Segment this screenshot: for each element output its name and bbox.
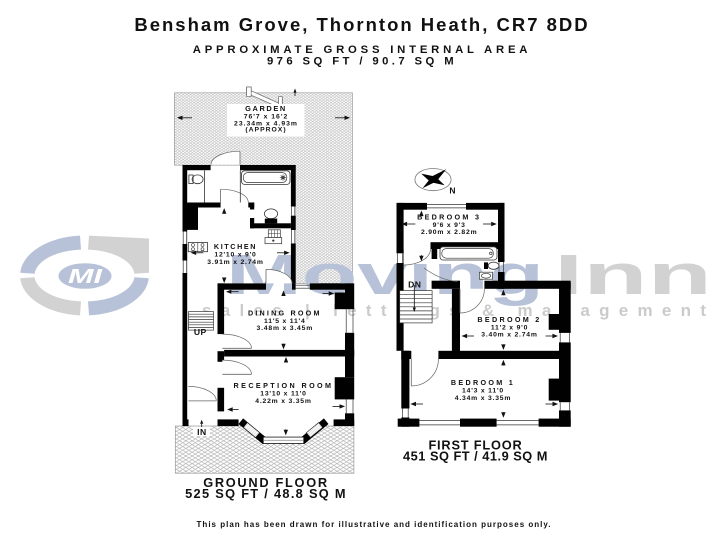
svg-text:RECEPTION ROOM: RECEPTION ROOM xyxy=(234,381,334,390)
svg-text:GARDEN: GARDEN xyxy=(245,104,287,113)
svg-text:9'6 x 9'3: 9'6 x 9'3 xyxy=(433,222,466,229)
svg-text:UP: UP xyxy=(194,327,207,337)
svg-text:Inn: Inn xyxy=(554,243,712,307)
svg-text:2.90m x 2.82m: 2.90m x 2.82m xyxy=(421,229,478,236)
svg-text:976 SQ FT / 90.7 SQ M: 976 SQ FT / 90.7 SQ M xyxy=(267,56,457,68)
svg-text:DN: DN xyxy=(408,280,421,290)
svg-text:14'3 x 11'0: 14'3 x 11'0 xyxy=(462,388,504,395)
svg-text:525 SQ FT / 48.8 SQ M: 525 SQ FT / 48.8 SQ M xyxy=(185,486,347,501)
svg-text:3.40m x 2.74m: 3.40m x 2.74m xyxy=(481,332,538,339)
svg-text:4.22m x 3.35m: 4.22m x 3.35m xyxy=(255,398,312,405)
svg-text:3.48m x 3.45m: 3.48m x 3.45m xyxy=(257,325,314,332)
svg-text:DINING ROOM: DINING ROOM xyxy=(248,308,322,317)
svg-text:(APPROX): (APPROX) xyxy=(245,127,286,134)
svg-text:IN: IN xyxy=(197,427,207,437)
svg-text:Bensham Grove, Thornton Heath,: Bensham Grove, Thornton Heath, CR7 8DD xyxy=(134,14,589,35)
svg-text:13'10 x 11'0: 13'10 x 11'0 xyxy=(260,391,306,398)
svg-text:MI: MI xyxy=(68,266,103,288)
svg-text:BEDROOM 1: BEDROOM 1 xyxy=(451,378,515,387)
svg-text:BEDROOM 2: BEDROOM 2 xyxy=(477,315,541,324)
svg-text:4.34m x 3.35m: 4.34m x 3.35m xyxy=(455,395,512,402)
svg-text:This plan has been drawn for i: This plan has been drawn for illustrativ… xyxy=(197,520,552,529)
svg-text:451 SQ FT / 41.9 SQ M: 451 SQ FT / 41.9 SQ M xyxy=(403,448,548,463)
svg-text:APPROXIMATE GROSS INTERNAL ARE: APPROXIMATE GROSS INTERNAL AREA xyxy=(193,44,532,56)
svg-text:11'5 x 11'4: 11'5 x 11'4 xyxy=(264,318,306,325)
svg-text:12'10 x 9'0: 12'10 x 9'0 xyxy=(214,252,256,259)
svg-text:KITCHEN: KITCHEN xyxy=(214,242,257,251)
svg-text:11'2 x 9'0: 11'2 x 9'0 xyxy=(491,324,528,331)
svg-text:3.91m x 2.74m: 3.91m x 2.74m xyxy=(207,259,264,266)
svg-text:N: N xyxy=(449,186,455,196)
svg-text:BEDROOM 3: BEDROOM 3 xyxy=(417,213,481,222)
